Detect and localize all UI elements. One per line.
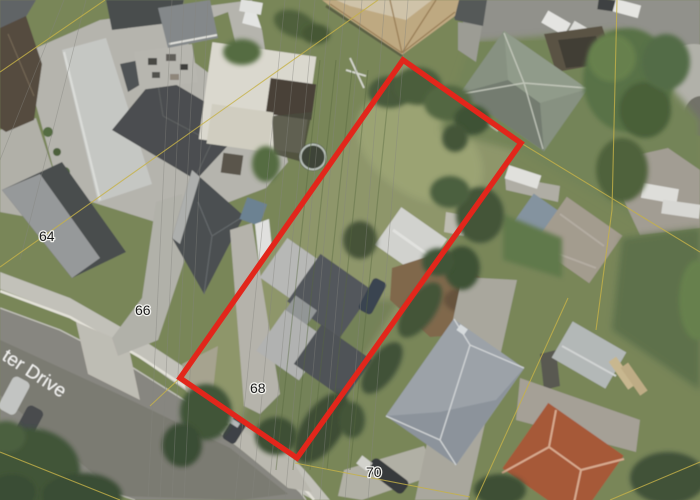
svg-text:68: 68 [250,380,266,396]
svg-text:70: 70 [366,464,382,480]
svg-text:64: 64 [39,228,55,244]
svg-text:66: 66 [135,302,151,318]
